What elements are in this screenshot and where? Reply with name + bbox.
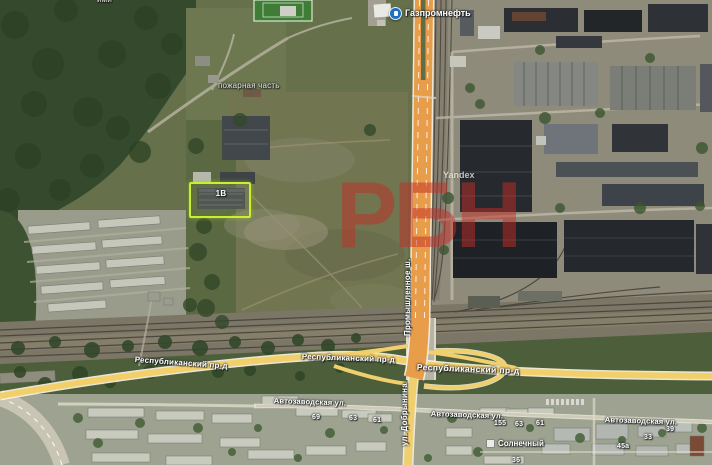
selected-building-outline[interactable] xyxy=(189,182,251,218)
satellite-imagery xyxy=(0,0,712,465)
satellite-map[interactable]: 1В РБН Yandex Газпромнефть ими пожарная … xyxy=(0,0,712,465)
building-number: 69 xyxy=(312,414,320,421)
building-number: 63 xyxy=(349,415,357,422)
building-number: 45а xyxy=(617,443,629,450)
provider-watermark: Yandex xyxy=(443,170,475,180)
building-number: 61 xyxy=(373,417,381,424)
fire-station-label: пожарная часть xyxy=(218,82,280,90)
building-number: 155 xyxy=(494,420,506,427)
poi-district-solnechny: Солнечный xyxy=(486,439,544,448)
partial-edge-label: ими xyxy=(97,0,112,4)
building-number: 63 xyxy=(515,421,523,428)
fuel-station-icon xyxy=(389,7,402,20)
building-number: 39 xyxy=(666,426,674,433)
fuel-station-label: Газпромнефть xyxy=(405,9,471,18)
building-number: 61 xyxy=(536,420,544,427)
street-label-dobrynina: ул. Добрынина xyxy=(401,386,409,446)
district-label: Солнечный xyxy=(498,440,544,448)
poi-fuel-station[interactable]: Газпромнефть xyxy=(389,7,471,20)
district-icon xyxy=(486,439,495,448)
street-label-promyshlennoye: Промышленное ш. xyxy=(404,246,412,336)
building-number: 36 xyxy=(512,457,520,464)
selected-building-number: 1В xyxy=(198,190,244,198)
building-number: 33 xyxy=(644,434,652,441)
